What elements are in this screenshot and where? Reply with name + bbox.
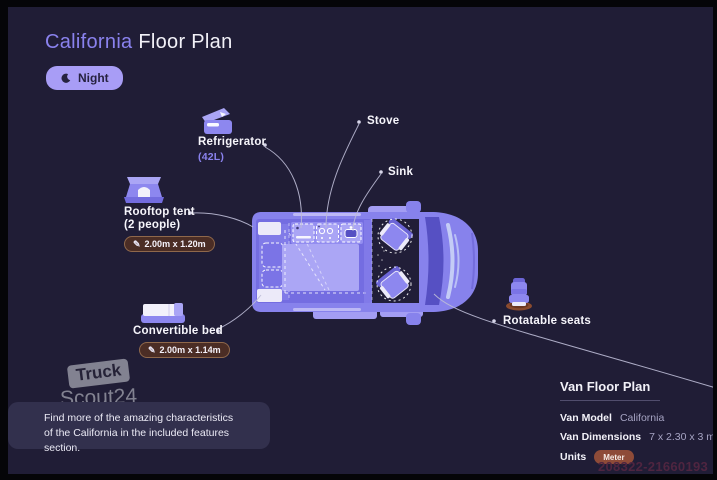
info-panel-divider bbox=[560, 400, 660, 401]
page-title: California Floor Plan bbox=[45, 31, 233, 54]
page-title-model: California bbox=[45, 31, 132, 53]
night-mode-toggle[interactable]: Night bbox=[46, 66, 123, 90]
info-panel-title: Van Floor Plan bbox=[560, 379, 716, 394]
frame-border-bottom bbox=[0, 474, 717, 480]
van-model-value: California bbox=[620, 412, 664, 424]
frame-border-top bbox=[0, 0, 717, 7]
kitchen-fridge bbox=[293, 224, 314, 242]
van-dimensions-label: Van Dimensions bbox=[560, 431, 641, 443]
page-title-rest: Floor Plan bbox=[138, 31, 232, 53]
rotatable-seat-icon bbox=[502, 276, 536, 312]
pencil-icon: ✎ bbox=[133, 240, 141, 249]
callout-refrigerator: Refrigerator (42L) bbox=[198, 136, 266, 164]
units-label: Units bbox=[560, 451, 586, 463]
rooftop-tent-capacity: (2 people) bbox=[124, 219, 195, 232]
refrigerator-capacity: (42L) bbox=[198, 151, 266, 164]
info-row-model: Van Model California bbox=[560, 412, 716, 424]
night-mode-label: Night bbox=[78, 71, 109, 85]
moon-icon bbox=[60, 73, 71, 84]
rooftop-tent-dimensions: 2.00m x 1.20m bbox=[145, 239, 206, 249]
features-note-line2: of the California in the included featur… bbox=[44, 426, 260, 456]
sink-label: Sink bbox=[388, 166, 413, 179]
convertible-bed-label: Convertible bed bbox=[133, 325, 223, 338]
frame-border-left bbox=[0, 0, 8, 480]
callout-rooftop-tent: Rooftop tent (2 people) bbox=[124, 206, 195, 232]
rotatable-seats-label: Rotatable seats bbox=[503, 315, 591, 328]
cabinet-top bbox=[258, 222, 281, 235]
van-dimensions-value: 7 x 2.30 x 3 m bbox=[649, 431, 715, 443]
convertible-bed-dimensions-badge: ✎ 2.00m x 1.14m bbox=[139, 342, 230, 358]
listing-id-watermark: 208322-21660193 bbox=[598, 459, 708, 474]
van-model-label: Van Model bbox=[560, 412, 612, 424]
van-top-view bbox=[245, 193, 485, 333]
frame-border-right bbox=[713, 0, 717, 480]
info-row-dimensions: Van Dimensions 7 x 2.30 x 3 m bbox=[560, 431, 716, 443]
rooftop-tent-dimensions-badge: ✎ 2.00m x 1.20m bbox=[124, 236, 215, 252]
side-mirror-top bbox=[406, 201, 421, 213]
convertible-bed-dimensions: 2.00m x 1.14m bbox=[160, 345, 221, 355]
features-note-line1: Find more of the amazing characteristics bbox=[44, 411, 260, 426]
cabinet-bottom bbox=[257, 289, 282, 302]
refrigerator-label: Refrigerator bbox=[198, 136, 266, 149]
pencil-icon: ✎ bbox=[148, 346, 156, 355]
features-note: Find more of the amazing characteristics… bbox=[8, 402, 270, 449]
van-info-panel: Van Floor Plan Van Model California Van … bbox=[560, 379, 716, 464]
side-mirror-bottom bbox=[406, 313, 421, 325]
convertible-bed-icon bbox=[138, 300, 188, 326]
rooftop-tent-icon bbox=[120, 175, 168, 205]
rooftop-tent-label: Rooftop tent bbox=[124, 206, 195, 219]
stove-label: Stove bbox=[367, 115, 399, 128]
bed-area bbox=[282, 244, 359, 291]
refrigerator-icon bbox=[198, 104, 238, 138]
